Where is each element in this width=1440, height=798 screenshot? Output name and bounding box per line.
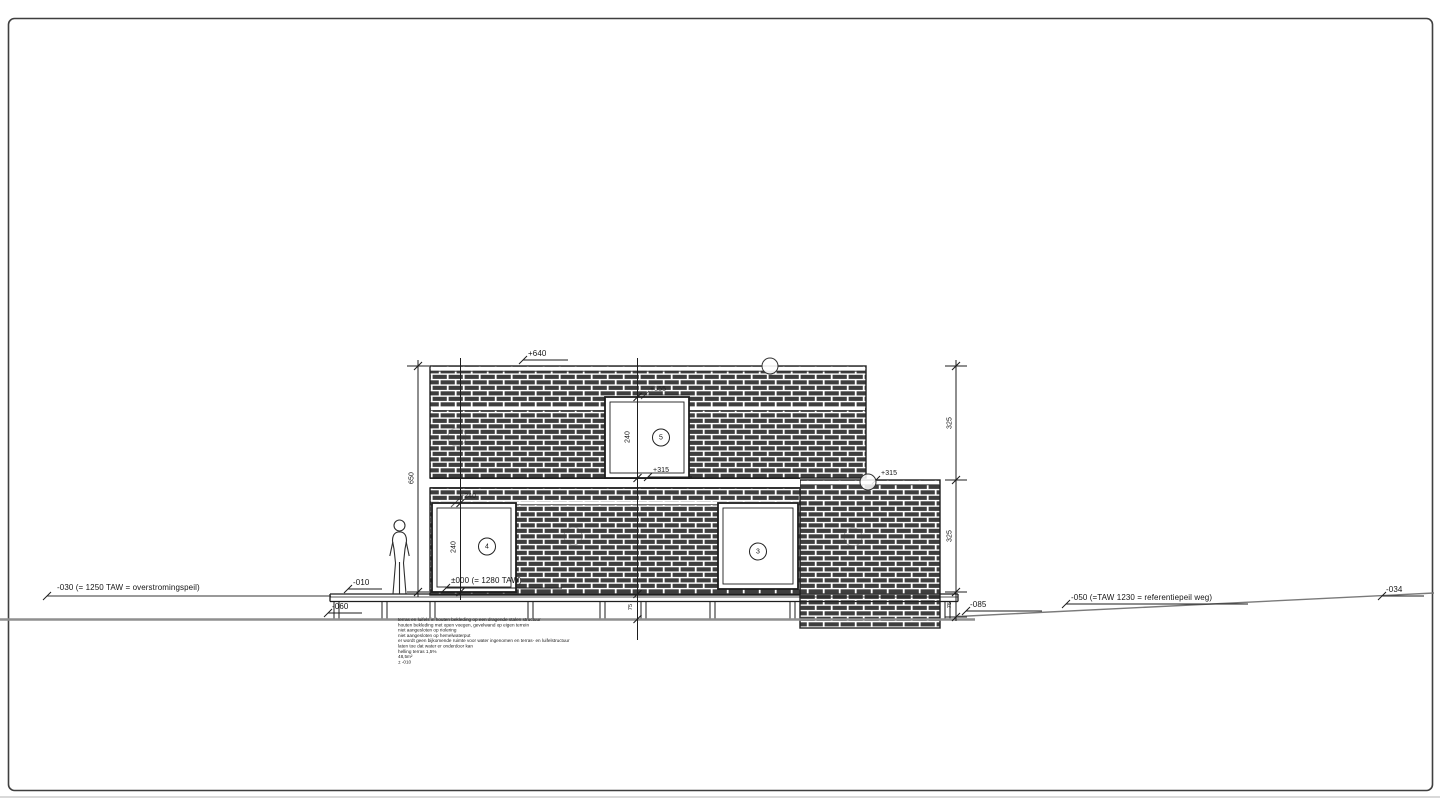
level-road-far-label: -034 bbox=[1386, 586, 1402, 594]
drawing-page: +640 +555 +315 +315 +240 ±000 (= 1280 TA… bbox=[0, 0, 1440, 798]
dim-left-total: 650 bbox=[409, 472, 416, 484]
level-top-label: +640 bbox=[528, 350, 546, 358]
level-terrace-label: -010 bbox=[353, 579, 369, 587]
dim-right-base: 75 bbox=[947, 602, 953, 608]
dim-right-lower: 325 bbox=[947, 530, 954, 542]
dim-window-lower-height: 240 bbox=[451, 541, 458, 553]
level-road-ref-label: -050 (=TAW 1230 = referentiepeil weg) bbox=[1071, 594, 1212, 602]
note-line: ± -010 bbox=[398, 659, 828, 664]
elevation-linework bbox=[0, 0, 1440, 796]
window-tag-lower-left: 4 bbox=[485, 543, 489, 550]
detail-marker-annex bbox=[860, 474, 876, 490]
level-flood-label: -030 (= 1250 TAW = overstromingspeil) bbox=[57, 584, 200, 592]
window-tag-lower-right: 3 bbox=[756, 548, 760, 555]
level-annex-top-label: +315 bbox=[881, 470, 897, 477]
level-terrace-under-label: -060 bbox=[332, 603, 348, 611]
level-upper-window-sill-label: +315 bbox=[653, 467, 669, 474]
dim-deck-base: 75 bbox=[628, 604, 634, 610]
annex-wall bbox=[800, 480, 940, 628]
person-figure bbox=[390, 520, 409, 594]
level-lower-window-head-label: +240 bbox=[460, 493, 476, 500]
window-tag-upper: 5 bbox=[659, 434, 663, 441]
dim-right-upper: 325 bbox=[947, 417, 954, 429]
dim-window-upper-height: 240 bbox=[625, 431, 632, 443]
detail-marker-top bbox=[762, 358, 778, 374]
level-ground-right-label: -085 bbox=[970, 601, 986, 609]
notes-block: terras en luifels in houten bekleding op… bbox=[398, 617, 828, 665]
level-upper-window-head-label: +555 bbox=[650, 386, 666, 393]
floor-band bbox=[430, 478, 800, 488]
level-zero-label: ±000 (= 1280 TAW) bbox=[451, 577, 522, 585]
